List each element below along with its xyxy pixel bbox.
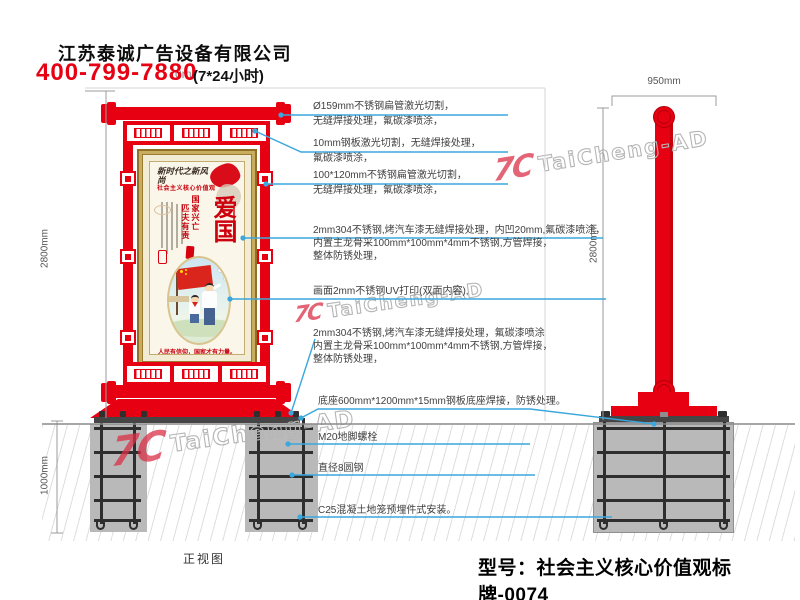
drawing-sheet: 江苏泰诚广告设备有限公司 0m 400-799-7880 (7*24小时) 新时…: [0, 0, 800, 600]
model-number: 型号：社会主义核心价值观标牌-0074: [478, 553, 800, 600]
annotation-base-plate: 底座600mm*1200mm*15mm钢板底座焊接，防锈处理。: [318, 396, 566, 409]
annotation-tube-100x120: 100*120mm不锈钢扁管激光切割， 无缝焊接处理，氟碳漆喷涂，: [313, 170, 467, 198]
annotation-steel-plate-10mm: 10mm钢板激光切割，无缝焊接处理， 氟碳漆喷涂，: [313, 138, 481, 166]
front-height-dim: 2800mm: [40, 221, 51, 277]
underground-depth-dim: 1000mm: [40, 448, 51, 504]
annotation-uv-print: 画面2mm不锈钢UV打印(双面内容),: [313, 286, 469, 299]
annotation-pipe-159: Ø159mm不锈钢扁管激光切割， 无缝焊接处理，氟碳漆喷涂，: [313, 101, 454, 129]
annotation-anchor-bolt: M20地脚螺栓: [318, 432, 377, 445]
side-width-dim: 950mm: [634, 76, 694, 87]
hotline-number: 400-799-7880: [36, 59, 197, 87]
annotation-concrete-cage: C25混凝土地笼预埋件式安装。: [318, 505, 456, 518]
annotation-cabinet-upper: 2mm304不锈钢,烤汽车漆无缝焊接处理，内凹20mm,氟碳漆喷涂， 内置主龙骨…: [313, 225, 605, 263]
annotation-cabinet-lower: 2mm304不锈钢,烤汽车漆无缝焊接处理，氟碳漆喷涂 内置主龙骨采100mm*1…: [313, 328, 552, 366]
hotline-hours: (7*24小时): [193, 65, 264, 86]
annotation-round-steel: 直径8圆钢: [318, 463, 364, 476]
front-view-caption: 正视图: [183, 550, 225, 567]
